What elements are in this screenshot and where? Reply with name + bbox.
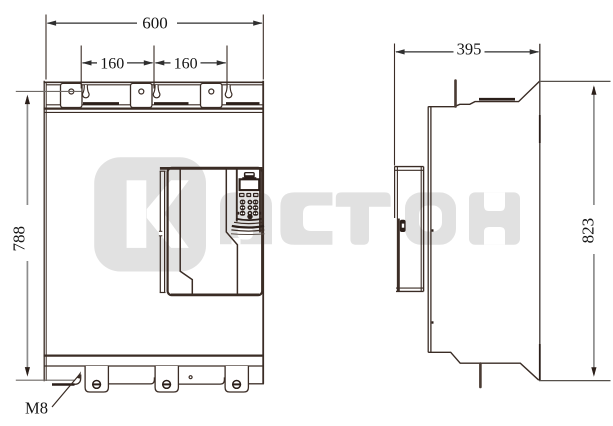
svg-text:M8: M8 (25, 399, 48, 418)
svg-text:160: 160 (174, 56, 198, 73)
svg-text:823: 823 (579, 218, 598, 244)
svg-text:600: 600 (142, 13, 168, 32)
svg-text:395: 395 (457, 40, 482, 59)
svg-text:788: 788 (10, 226, 29, 252)
svg-text:160: 160 (100, 56, 124, 73)
